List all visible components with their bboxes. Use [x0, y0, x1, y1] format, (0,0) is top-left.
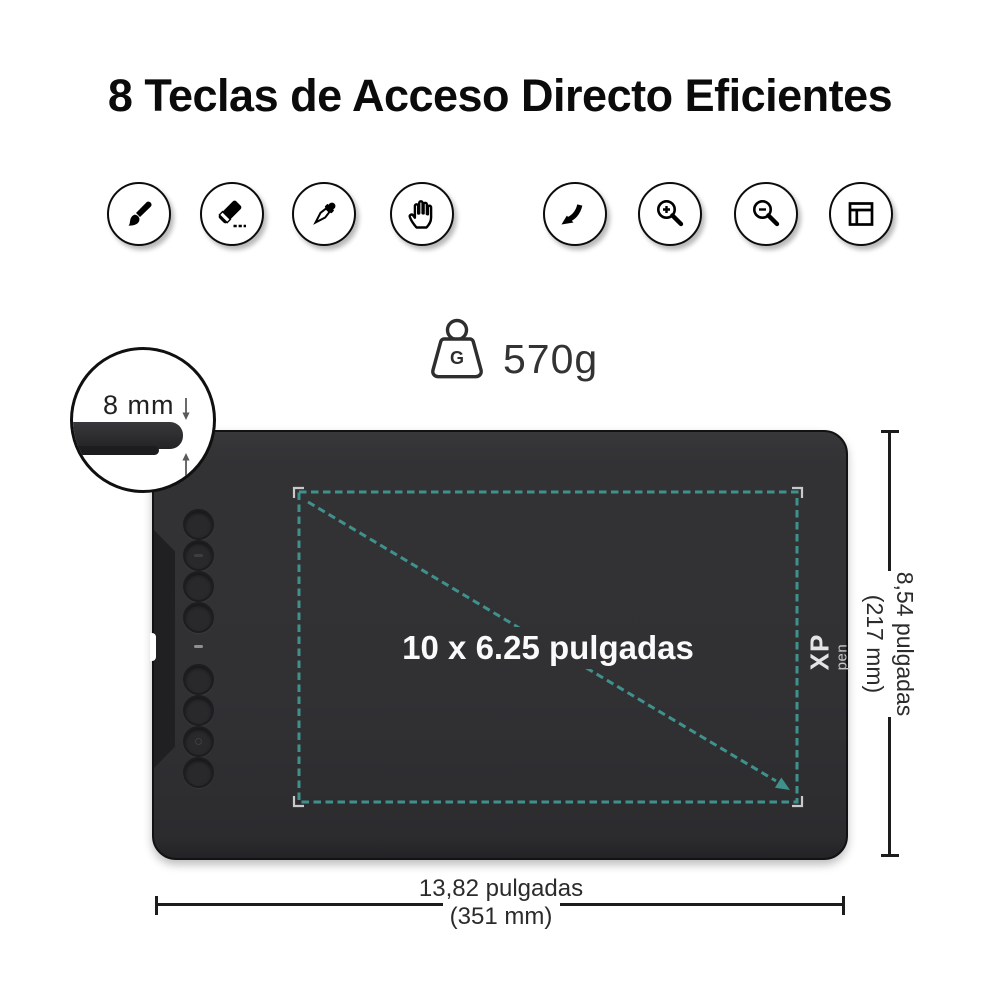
- brush-icon: [107, 182, 171, 246]
- brush-glyph: [121, 196, 157, 232]
- height-dim-line-top: [888, 431, 891, 571]
- eyedropper-glyph: [306, 196, 342, 232]
- height-dim-cap-bottom: [881, 854, 899, 857]
- width-mm: (351 mm): [450, 903, 553, 931]
- zoom-out-glyph: [748, 196, 784, 232]
- height-dim-cap-top: [881, 430, 899, 433]
- window-layout-icon: [829, 182, 893, 246]
- eraser-glyph: [214, 196, 250, 232]
- tablet-body: 10 x 6.25 pulgadas XP pen: [152, 430, 848, 860]
- page-title: 8 Teclas de Acceso Directo Eficientes: [0, 70, 1000, 122]
- undo-glyph: [557, 196, 593, 232]
- height-inches: 8,54 pulgadas: [889, 572, 919, 717]
- width-dim-line-right: [560, 903, 845, 906]
- width-dim-cap-left: [155, 896, 158, 915]
- height-mm: (217 mm): [859, 572, 889, 717]
- zoom-in-glyph: [652, 196, 688, 232]
- xp-pen-logo: XP pen: [807, 634, 850, 671]
- height-dim-line-bottom: [888, 717, 891, 856]
- eraser-icon: [200, 182, 264, 246]
- active-area-label: 10 x 6.25 pulgadas: [390, 627, 706, 669]
- weight-icon-letter: G: [450, 348, 464, 368]
- width-inches: 13,82 pulgadas: [419, 875, 583, 903]
- window-layout-glyph: [843, 196, 879, 232]
- width-dim-cap-right: [842, 896, 845, 915]
- undo-icon: [543, 182, 607, 246]
- zoom-out-icon: [734, 182, 798, 246]
- width-dim-line-left: [155, 903, 443, 906]
- height-dimension-label: 8,54 pulgadas (217 mm): [859, 572, 919, 717]
- eyedropper-icon: [292, 182, 356, 246]
- logo-line-xp: XP: [807, 634, 833, 671]
- thickness-callout: 8 mm: [70, 347, 216, 493]
- thickness-arrows: [73, 350, 216, 493]
- hand-glyph: [404, 196, 440, 232]
- hand-icon: [390, 182, 454, 246]
- weight-icon: G: [420, 316, 494, 400]
- zoom-in-icon: [638, 182, 702, 246]
- tablet-edge-notch: [150, 633, 156, 661]
- logo-line-pen: pen: [835, 634, 850, 671]
- weight-value: 570g: [503, 336, 598, 383]
